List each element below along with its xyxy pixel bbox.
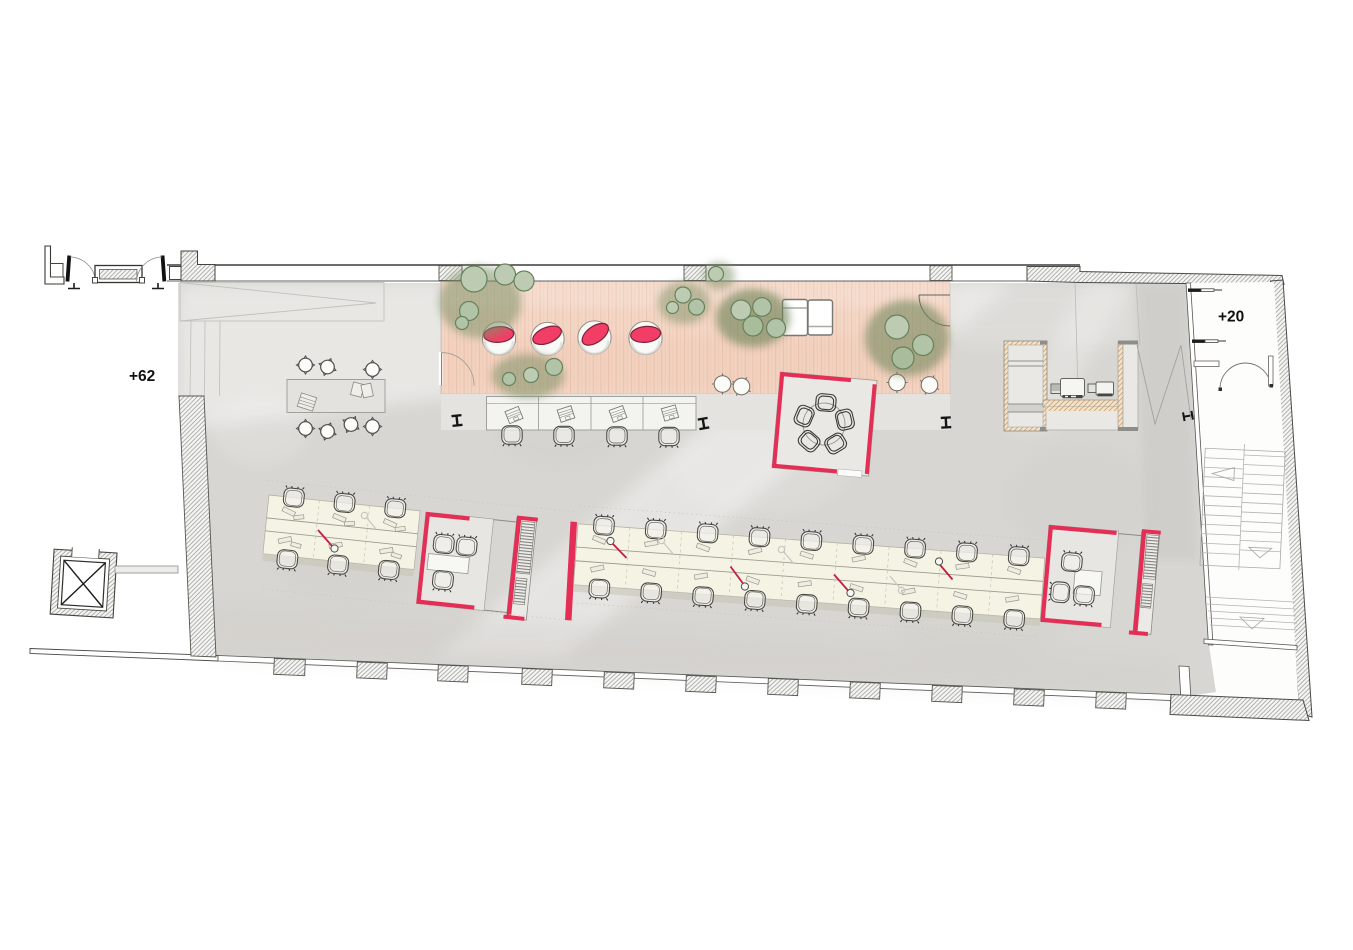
svg-text:+20: +20 — [1218, 309, 1244, 326]
svg-text:+62: +62 — [129, 368, 155, 385]
